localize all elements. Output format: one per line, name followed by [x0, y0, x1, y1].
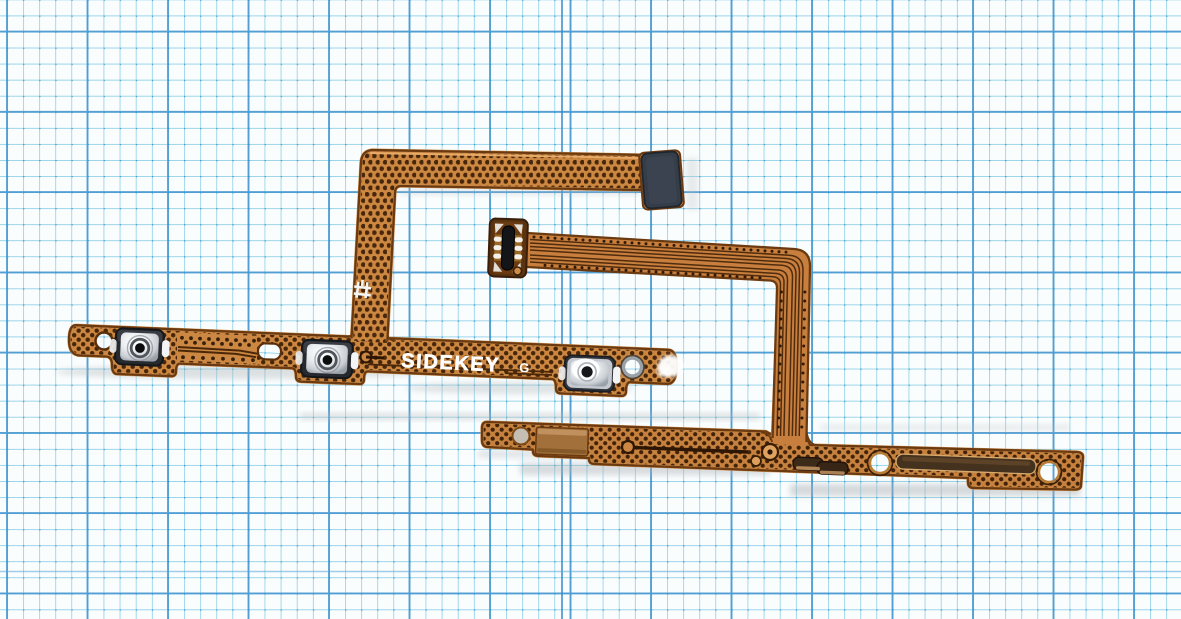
svg-text:G: G [519, 360, 530, 375]
svg-text:SIDEKEY: SIDEKEY [401, 350, 501, 377]
